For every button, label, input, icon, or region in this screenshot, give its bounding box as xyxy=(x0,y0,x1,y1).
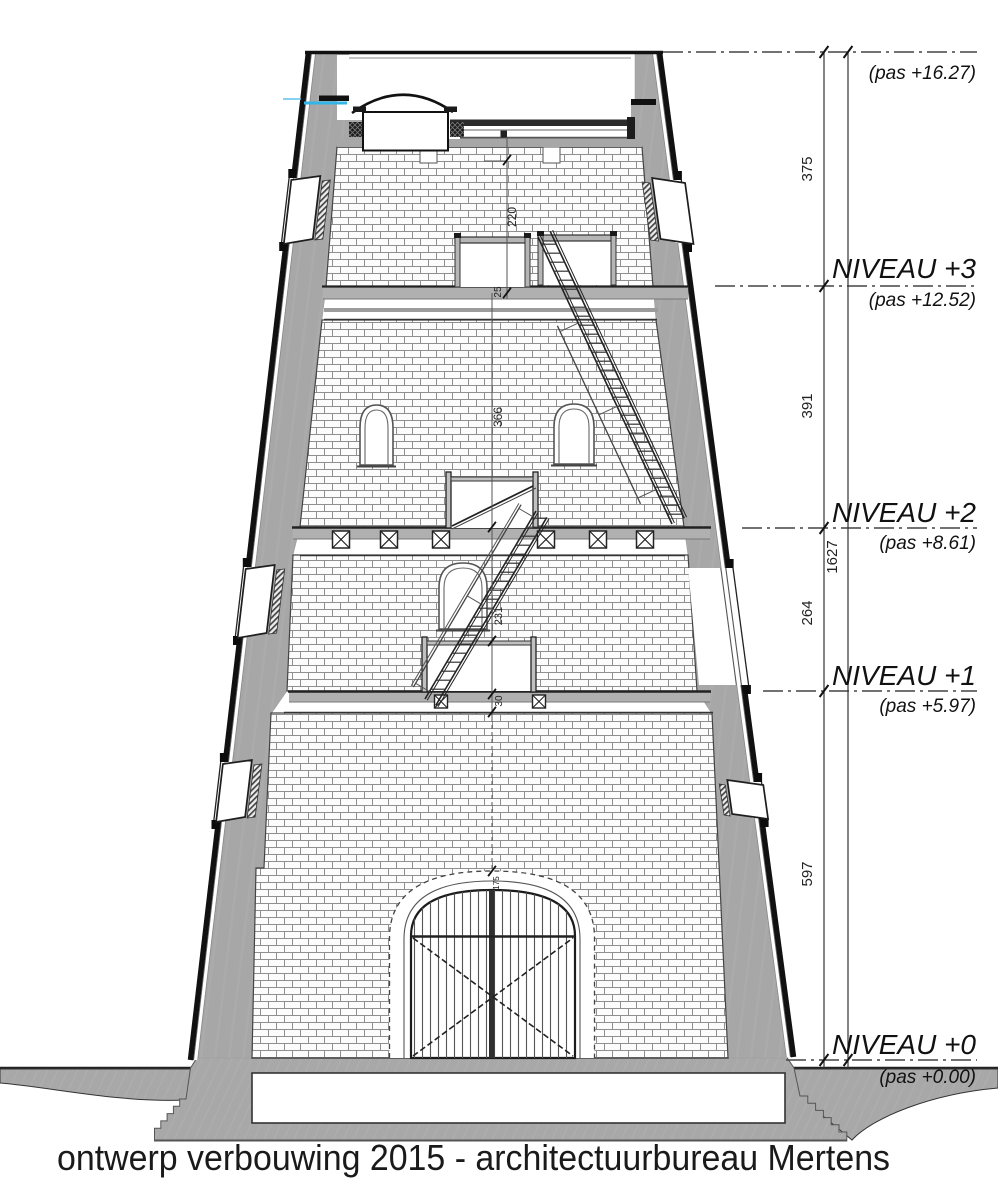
svg-text:NIVEAU +3: NIVEAU +3 xyxy=(832,253,976,284)
svg-text:NIVEAU +1: NIVEAU +1 xyxy=(832,660,976,691)
svg-text:NIVEAU +0: NIVEAU +0 xyxy=(832,1029,976,1060)
svg-text:(pas +12.52): (pas +12.52) xyxy=(869,290,976,311)
svg-text:1627: 1627 xyxy=(824,540,841,573)
svg-text:ontwerp verbouwing 2015 - arch: ontwerp verbouwing 2015 - architectuurbu… xyxy=(57,1137,890,1178)
svg-text:375: 375 xyxy=(799,156,816,181)
svg-text:366: 366 xyxy=(491,407,505,427)
svg-text:264: 264 xyxy=(799,600,816,625)
svg-text:(pas +5.97): (pas +5.97) xyxy=(879,696,976,717)
svg-text:(pas +8.61): (pas +8.61) xyxy=(879,533,976,554)
svg-text:597: 597 xyxy=(799,861,816,886)
svg-text:25: 25 xyxy=(493,286,504,298)
svg-text:175: 175 xyxy=(492,876,501,890)
svg-text:30: 30 xyxy=(494,695,505,707)
svg-text:391: 391 xyxy=(799,393,816,418)
svg-text:231: 231 xyxy=(493,607,505,625)
svg-text:220: 220 xyxy=(505,207,519,227)
svg-text:(pas +16.27): (pas +16.27) xyxy=(869,63,976,84)
svg-text:(pas +0.00): (pas +0.00) xyxy=(879,1067,976,1088)
svg-text:NIVEAU +2: NIVEAU +2 xyxy=(832,497,976,528)
